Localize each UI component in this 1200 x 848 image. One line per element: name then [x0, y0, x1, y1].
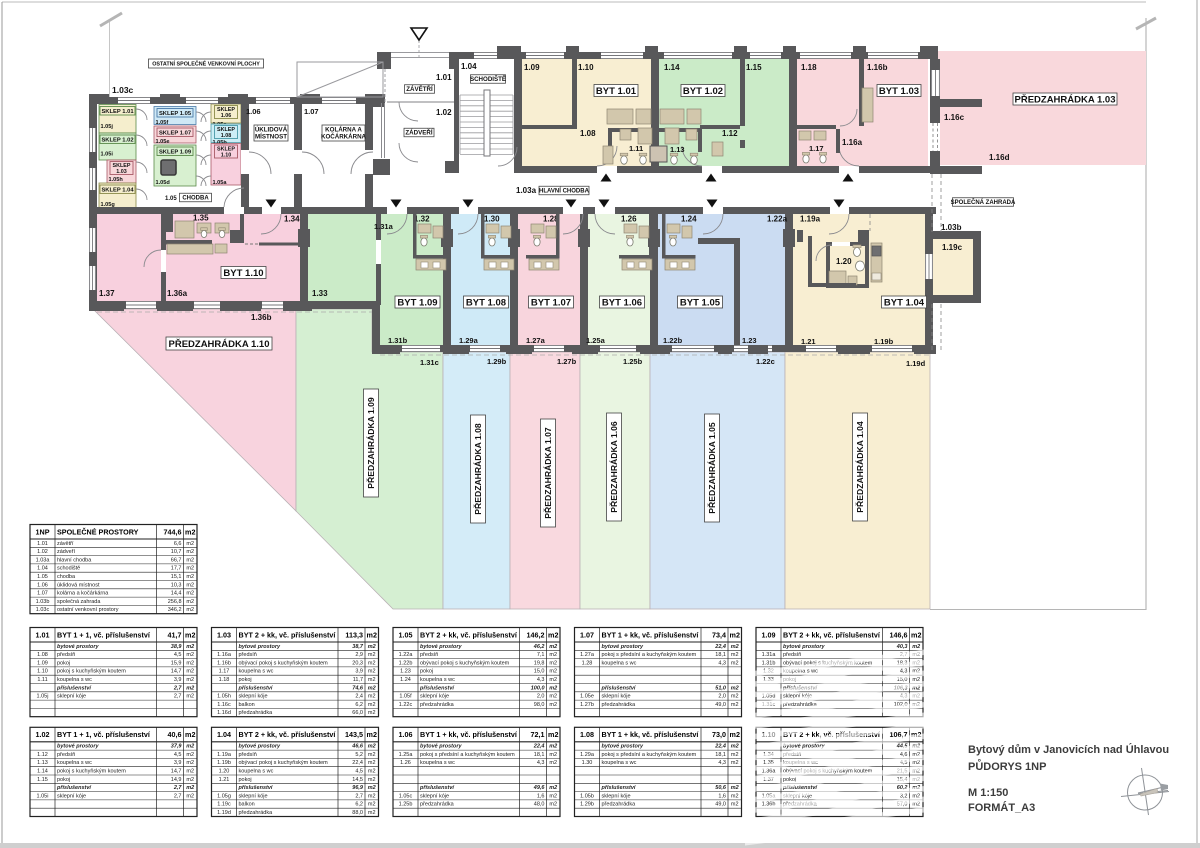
svg-text:1.19c: 1.19c	[942, 243, 963, 252]
svg-text:1.21: 1.21	[801, 337, 816, 346]
svg-text:1.19a: 1.19a	[217, 752, 232, 758]
svg-text:m2: m2	[731, 660, 739, 666]
svg-text:1.08: 1.08	[37, 652, 48, 658]
svg-text:1.19a: 1.19a	[800, 215, 821, 224]
svg-text:1.15: 1.15	[746, 63, 762, 72]
svg-text:koupelna s wc: koupelna s wc	[420, 677, 455, 683]
svg-text:společná zahrada: společná zahrada	[57, 599, 101, 605]
svg-text:ZÁDVEŘÍ: ZÁDVEŘÍ	[405, 129, 432, 137]
svg-text:sklepní kóje: sklepní kóje	[602, 793, 631, 799]
svg-text:1.16c: 1.16c	[944, 113, 965, 122]
svg-text:4,5: 4,5	[174, 652, 182, 658]
svg-text:m2: m2	[549, 669, 557, 675]
svg-text:m2: m2	[731, 793, 739, 799]
svg-text:m2: m2	[549, 785, 557, 791]
svg-text:17,7: 17,7	[171, 566, 182, 572]
svg-text:1.16b: 1.16b	[217, 660, 231, 666]
svg-text:balkon: balkon	[239, 702, 255, 708]
svg-text:m2: m2	[911, 630, 921, 639]
svg-text:koupelna s wc: koupelna s wc	[420, 760, 455, 766]
svg-text:1.04: 1.04	[461, 62, 477, 71]
svg-text:1.31a: 1.31a	[762, 652, 777, 658]
svg-text:3,9: 3,9	[174, 760, 182, 766]
svg-text:m2: m2	[731, 694, 739, 700]
svg-text:m2: m2	[368, 669, 376, 675]
svg-text:bytové prostory: bytové prostory	[783, 644, 826, 650]
svg-text:HLAVNÍ CHODBA: HLAVNÍ CHODBA	[539, 187, 590, 195]
svg-text:1.23: 1.23	[400, 669, 411, 675]
svg-text:předzahrádka: předzahrádka	[602, 802, 637, 808]
svg-text:1.19d: 1.19d	[906, 359, 926, 368]
svg-text:BYT 1 + kk, vč. příslušenství: BYT 1 + kk, vč. příslušenství	[602, 730, 700, 739]
svg-text:bytové prostory: bytové prostory	[602, 744, 645, 750]
svg-text:1.05e: 1.05e	[580, 694, 594, 700]
svg-text:1.22c: 1.22c	[399, 702, 413, 708]
svg-text:m2: m2	[731, 785, 739, 791]
svg-text:BYT 1.07: BYT 1.07	[531, 297, 571, 308]
svg-text:m2: m2	[730, 730, 740, 739]
svg-text:1.10: 1.10	[37, 669, 48, 675]
svg-text:BYT 1.04: BYT 1.04	[884, 297, 925, 308]
svg-text:1.03c: 1.03c	[36, 607, 50, 613]
svg-text:m2: m2	[186, 549, 194, 555]
svg-text:1.22b: 1.22b	[663, 336, 683, 345]
svg-text:1.19b: 1.19b	[217, 760, 231, 766]
svg-text:pokoj: pokoj	[239, 677, 252, 683]
svg-text:1.01: 1.01	[37, 541, 48, 547]
svg-text:1.02: 1.02	[436, 108, 452, 117]
svg-text:1.16a: 1.16a	[217, 652, 232, 658]
svg-text:1.03b: 1.03b	[36, 599, 50, 605]
svg-text:pokoj s předsíní a kuchyňským: pokoj s předsíní a kuchyňským koutem	[602, 652, 697, 658]
svg-text:m2: m2	[731, 744, 739, 750]
svg-text:m2: m2	[186, 582, 194, 588]
svg-text:BYT 2 + kk, vč. příslušenství: BYT 2 + kk, vč. příslušenství	[420, 630, 518, 639]
svg-text:předzahrádka: předzahrádka	[602, 702, 637, 708]
svg-text:m2: m2	[186, 760, 194, 766]
svg-text:m2: m2	[368, 685, 376, 691]
svg-text:1.19b: 1.19b	[874, 337, 894, 346]
svg-text:6,6: 6,6	[174, 541, 182, 547]
svg-text:49,0: 49,0	[715, 702, 726, 708]
svg-text:PŘEDZAHRÁDKA 1.07: PŘEDZAHRÁDKA 1.07	[542, 427, 553, 519]
svg-text:1.25b: 1.25b	[399, 802, 413, 808]
svg-text:m2: m2	[368, 793, 376, 799]
svg-text:ostatní venkovní prostory: ostatní venkovní prostory	[57, 607, 119, 613]
svg-text:m2: m2	[731, 802, 739, 808]
svg-text:11,7: 11,7	[353, 677, 363, 683]
svg-text:chodba: chodba	[57, 574, 76, 580]
svg-text:1.05j: 1.05j	[37, 694, 49, 700]
svg-text:m2: m2	[549, 685, 557, 691]
svg-text:744,6: 744,6	[164, 527, 182, 536]
svg-text:BYT 1.09: BYT 1.09	[397, 297, 437, 308]
svg-text:BYT 1.08: BYT 1.08	[466, 297, 506, 308]
svg-text:1.03c: 1.03c	[112, 85, 134, 95]
svg-text:346,2: 346,2	[168, 607, 182, 613]
svg-text:PŘEDZAHRÁDKA 1.08: PŘEDZAHRÁDKA 1.08	[472, 423, 483, 515]
svg-text:m2: m2	[368, 744, 376, 750]
svg-text:6,2: 6,2	[355, 702, 363, 708]
svg-text:14,4: 14,4	[171, 591, 182, 597]
svg-text:1.16c: 1.16c	[217, 702, 231, 708]
svg-text:15,9: 15,9	[171, 660, 182, 666]
svg-text:1.27a: 1.27a	[580, 652, 595, 658]
svg-text:m2: m2	[186, 669, 194, 675]
svg-text:m2: m2	[186, 694, 194, 700]
svg-text:BYT 2 + kk, vč. příslušenství: BYT 2 + kk, vč. příslušenství	[783, 630, 881, 639]
svg-text:m2: m2	[367, 630, 377, 639]
svg-text:příslušenství: příslušenství	[56, 785, 92, 791]
svg-text:4,3: 4,3	[537, 760, 545, 766]
svg-text:PŮDORYS 1NP: PŮDORYS 1NP	[968, 759, 1046, 773]
svg-text:bytové prostory: bytové prostory	[57, 644, 100, 650]
svg-text:SKLEP: SKLEP	[113, 163, 131, 169]
svg-text:18,1: 18,1	[715, 652, 726, 658]
svg-text:1.20: 1.20	[836, 257, 852, 266]
svg-text:m2: m2	[549, 793, 557, 799]
svg-text:pokoj s kuchyňským koutem: pokoj s kuchyňským koutem	[57, 669, 126, 675]
svg-text:1.31a: 1.31a	[374, 222, 394, 231]
svg-text:obývací pokoj s kuchyňským kou: obývací pokoj s kuchyňským koutem	[420, 660, 510, 666]
svg-text:m2: m2	[367, 730, 377, 739]
svg-text:PŘEDZAHRÁDKA 1.06: PŘEDZAHRÁDKA 1.06	[608, 421, 619, 513]
svg-text:m2: m2	[549, 652, 557, 658]
svg-text:předsíň: předsíň	[57, 652, 75, 658]
svg-text:7,1: 7,1	[537, 652, 545, 658]
svg-text:1.23: 1.23	[742, 336, 757, 345]
svg-text:BYT 2 + kk, vč. příslušenství: BYT 2 + kk, vč. příslušenství	[239, 730, 337, 739]
svg-text:koupelna s wc: koupelna s wc	[602, 760, 637, 766]
svg-text:pokoj s předsíní a kuchyňským: pokoj s předsíní a kuchyňským koutem	[602, 752, 697, 758]
svg-text:m2: m2	[185, 630, 195, 639]
svg-text:m2: m2	[186, 685, 194, 691]
svg-text:předsíň: předsíň	[239, 652, 257, 658]
svg-text:m2: m2	[549, 752, 557, 758]
svg-text:1.24: 1.24	[400, 677, 411, 683]
svg-text:BYT 1.01: BYT 1.01	[596, 86, 637, 97]
svg-text:BYT 1.10: BYT 1.10	[223, 268, 263, 279]
svg-text:BYT 1 + kk, vč. příslušenství: BYT 1 + kk, vč. příslušenství	[420, 730, 518, 739]
svg-text:1.22b: 1.22b	[399, 660, 413, 666]
svg-text:pokoj: pokoj	[239, 777, 252, 783]
svg-text:m2: m2	[185, 730, 195, 739]
svg-text:BYT 1.06: BYT 1.06	[602, 297, 642, 308]
svg-text:příslušenství: příslušenství	[238, 785, 274, 791]
svg-text:m2: m2	[549, 760, 557, 766]
svg-text:1.14: 1.14	[664, 63, 680, 72]
svg-text:1.31c: 1.31c	[420, 358, 439, 367]
svg-text:48,0: 48,0	[534, 802, 545, 808]
svg-text:KOLÁRNA A: KOLÁRNA A	[325, 127, 362, 134]
svg-text:SKLEP 1.02: SKLEP 1.02	[101, 137, 133, 143]
svg-text:M 1:150: M 1:150	[968, 787, 1008, 799]
svg-text:m2: m2	[548, 630, 558, 639]
svg-text:1.05f: 1.05f	[156, 120, 169, 126]
svg-text:1.03: 1.03	[116, 169, 127, 175]
svg-text:1.05f: 1.05f	[399, 694, 412, 700]
svg-text:2,0: 2,0	[537, 694, 545, 700]
svg-text:m2: m2	[368, 777, 376, 783]
svg-text:1.05h: 1.05h	[217, 694, 231, 700]
svg-text:m2: m2	[186, 785, 194, 791]
svg-text:m2: m2	[186, 677, 194, 683]
svg-text:m2: m2	[368, 702, 376, 708]
svg-text:1.10: 1.10	[221, 153, 232, 159]
svg-text:schodiště: schodiště	[57, 566, 80, 572]
svg-text:1.27a: 1.27a	[526, 336, 546, 345]
svg-text:MÍSTNOST: MÍSTNOST	[255, 133, 287, 141]
svg-text:6,2: 6,2	[355, 802, 363, 808]
svg-text:BYT 2 + kk, vč. příslušenství: BYT 2 + kk, vč. příslušenství	[239, 630, 337, 639]
svg-text:2,7: 2,7	[173, 685, 183, 691]
svg-text:příslušenství: příslušenství	[419, 785, 455, 791]
svg-text:m2: m2	[368, 785, 376, 791]
svg-text:obývací pokoj s kuchyňským kou: obývací pokoj s kuchyňským koutem	[239, 760, 329, 766]
svg-text:1.29b: 1.29b	[580, 802, 594, 808]
svg-text:koupelna s wc: koupelna s wc	[57, 760, 92, 766]
svg-text:1.04: 1.04	[217, 730, 231, 739]
svg-text:m2: m2	[368, 810, 376, 816]
svg-text:předzahrádka: předzahrádka	[239, 710, 274, 716]
svg-text:SKLEP 1.09: SKLEP 1.09	[159, 149, 192, 155]
svg-text:1.07: 1.07	[304, 107, 319, 116]
svg-text:2,0: 2,0	[718, 694, 726, 700]
svg-text:4,5: 4,5	[355, 769, 363, 775]
svg-text:BYT 1.03: BYT 1.03	[879, 86, 919, 97]
svg-text:1.16d: 1.16d	[989, 153, 1010, 162]
svg-text:m2: m2	[368, 769, 376, 775]
svg-text:4,5: 4,5	[174, 752, 182, 758]
svg-text:m2: m2	[186, 599, 194, 605]
svg-text:obývací pokoj s kuchyňským kou: obývací pokoj s kuchyňským koutem	[239, 660, 329, 666]
svg-text:m2: m2	[549, 802, 557, 808]
svg-text:1.36b: 1.36b	[251, 313, 272, 322]
svg-text:1,6: 1,6	[537, 793, 545, 799]
svg-text:PŘEDZAHRÁDKA 1.05: PŘEDZAHRÁDKA 1.05	[706, 422, 717, 514]
svg-text:předzahrádka: předzahrádka	[420, 702, 455, 708]
svg-text:příslušenství: příslušenství	[56, 685, 92, 691]
svg-text:1.27b: 1.27b	[557, 357, 577, 366]
svg-text:1.25b: 1.25b	[623, 357, 643, 366]
svg-text:bytové prostory: bytové prostory	[239, 644, 282, 650]
svg-text:PŘEDZAHRÁDKA 1.03: PŘEDZAHRÁDKA 1.03	[1015, 93, 1116, 105]
svg-text:46,2: 46,2	[533, 644, 545, 650]
svg-text:1.03a: 1.03a	[36, 557, 51, 563]
svg-text:sklepní kóje: sklepní kóje	[57, 793, 86, 799]
svg-text:zádveří: zádveří	[57, 549, 76, 555]
svg-text:100,0: 100,0	[531, 685, 545, 691]
svg-text:m2: m2	[185, 527, 195, 536]
svg-text:98,0: 98,0	[534, 702, 545, 708]
svg-text:10,3: 10,3	[171, 582, 182, 588]
svg-text:2,7: 2,7	[174, 694, 182, 700]
svg-text:2,9: 2,9	[355, 652, 363, 658]
svg-text:1.05c: 1.05c	[399, 793, 413, 799]
svg-text:1.20: 1.20	[219, 769, 230, 775]
svg-text:1.05: 1.05	[165, 196, 177, 202]
svg-text:pokoj s předsíní a kuchyňským: pokoj s předsíní a kuchyňským koutem	[420, 752, 515, 758]
svg-text:m2: m2	[186, 777, 194, 783]
svg-text:SKLEP: SKLEP	[217, 107, 235, 113]
svg-text:1.12: 1.12	[37, 752, 48, 758]
svg-text:1.03a: 1.03a	[516, 186, 537, 195]
svg-text:40,6: 40,6	[168, 730, 182, 739]
svg-text:1.06: 1.06	[37, 582, 48, 588]
svg-text:m2: m2	[368, 760, 376, 766]
svg-text:1.05d: 1.05d	[156, 180, 171, 186]
svg-text:BYT 1 + 1, vč. příslušenství: BYT 1 + 1, vč. příslušenství	[57, 730, 151, 739]
svg-text:m2: m2	[368, 660, 376, 666]
svg-text:113,3: 113,3	[345, 630, 363, 639]
svg-text:4,3: 4,3	[718, 760, 726, 766]
svg-text:1.07: 1.07	[580, 630, 594, 639]
svg-text:pokoj: pokoj	[57, 777, 70, 783]
svg-text:15,1: 15,1	[171, 574, 182, 580]
svg-text:22,4: 22,4	[533, 744, 545, 750]
svg-text:KOČÁRKÁRNA: KOČÁRKÁRNA	[321, 134, 367, 141]
svg-text:úklidová místnost: úklidová místnost	[57, 582, 100, 588]
svg-text:1.31b: 1.31b	[762, 660, 776, 666]
svg-text:146,6: 146,6	[890, 630, 908, 639]
svg-text:koupelna s wc: koupelna s wc	[57, 677, 92, 683]
svg-text:1.24: 1.24	[681, 215, 697, 224]
svg-text:m2: m2	[186, 574, 194, 580]
svg-text:SKLEP 1.01: SKLEP 1.01	[101, 109, 134, 115]
svg-text:38,7: 38,7	[352, 644, 364, 650]
svg-text:1NP: 1NP	[36, 527, 50, 536]
svg-text:BYT 1.05: BYT 1.05	[680, 297, 721, 308]
svg-text:22,4: 22,4	[352, 760, 363, 766]
svg-text:PŘEDZAHRÁDKA 1.09: PŘEDZAHRÁDKA 1.09	[365, 397, 376, 489]
svg-text:1.06: 1.06	[246, 107, 261, 116]
svg-text:1.16b: 1.16b	[867, 63, 888, 72]
svg-text:2,7: 2,7	[355, 793, 363, 799]
svg-text:příslušenství: příslušenství	[601, 785, 637, 791]
svg-text:14,5: 14,5	[352, 777, 363, 783]
svg-text:1.30: 1.30	[484, 215, 500, 224]
svg-text:příslušenství: příslušenství	[601, 685, 637, 691]
svg-text:1.30: 1.30	[582, 760, 593, 766]
svg-text:1.08: 1.08	[221, 133, 232, 139]
svg-text:88,0: 88,0	[352, 810, 363, 816]
svg-text:BYT 1 + kk, vč. příslušenství: BYT 1 + kk, vč. příslušenství	[602, 630, 700, 639]
svg-text:m2: m2	[186, 752, 194, 758]
svg-text:1.18: 1.18	[219, 677, 230, 683]
svg-text:49,0: 49,0	[715, 802, 726, 808]
svg-text:4,3: 4,3	[718, 660, 726, 666]
svg-text:příslušenství: příslušenství	[419, 685, 455, 691]
svg-text:m2: m2	[731, 752, 739, 758]
svg-text:m2: m2	[731, 652, 739, 658]
svg-text:1.02: 1.02	[37, 549, 48, 555]
svg-text:1.12: 1.12	[722, 129, 738, 138]
svg-text:1.09: 1.09	[762, 630, 776, 639]
svg-text:závětří: závětří	[57, 541, 74, 547]
svg-text:74,6: 74,6	[352, 685, 364, 691]
svg-text:m2: m2	[186, 607, 194, 613]
svg-text:1.22c: 1.22c	[756, 357, 775, 366]
svg-text:1.05: 1.05	[399, 630, 413, 639]
svg-text:2,7: 2,7	[173, 785, 183, 791]
svg-text:1.05h: 1.05h	[109, 177, 124, 183]
svg-text:SKLEP 1.04: SKLEP 1.04	[101, 187, 134, 193]
svg-text:1.10: 1.10	[578, 63, 594, 72]
svg-text:ZÁVĚTŘÍ: ZÁVĚTŘÍ	[406, 85, 433, 93]
svg-text:2,7: 2,7	[174, 793, 182, 799]
svg-text:m2: m2	[731, 760, 739, 766]
svg-text:PŘEDZAHRÁDKA 1.04: PŘEDZAHRÁDKA 1.04	[854, 421, 865, 513]
svg-text:256,8: 256,8	[168, 599, 182, 605]
svg-text:10,7: 10,7	[171, 549, 182, 555]
svg-text:1.25a: 1.25a	[586, 336, 606, 345]
svg-text:předsíň: předsíň	[57, 752, 75, 758]
svg-text:1.05i: 1.05i	[37, 793, 49, 799]
svg-text:1.25a: 1.25a	[399, 752, 414, 758]
svg-text:sklepní kóje: sklepní kóje	[239, 793, 268, 799]
svg-text:20,3: 20,3	[352, 660, 363, 666]
svg-text:22,4: 22,4	[714, 644, 726, 650]
svg-text:m2: m2	[549, 644, 557, 650]
svg-text:předsíň: předsíň	[783, 652, 801, 658]
svg-text:1.13: 1.13	[37, 760, 48, 766]
svg-text:m2: m2	[368, 677, 376, 683]
svg-text:1.05b: 1.05b	[580, 793, 594, 799]
svg-text:1.19d: 1.19d	[217, 810, 231, 816]
svg-text:51,0: 51,0	[715, 685, 726, 691]
svg-text:1.16a: 1.16a	[842, 138, 863, 147]
svg-text:1.09: 1.09	[37, 660, 48, 666]
svg-text:143,5: 143,5	[345, 730, 363, 739]
svg-text:1.26: 1.26	[400, 760, 411, 766]
svg-text:1.02: 1.02	[36, 730, 50, 739]
svg-text:m2: m2	[549, 677, 557, 683]
svg-text:49,6: 49,6	[533, 785, 546, 791]
svg-text:22,4: 22,4	[714, 744, 726, 750]
svg-text:1.04: 1.04	[37, 566, 48, 572]
svg-text:1.22a: 1.22a	[767, 215, 788, 224]
svg-text:38,9: 38,9	[171, 644, 183, 650]
svg-text:1.29b: 1.29b	[487, 357, 507, 366]
svg-text:BYT 1.02: BYT 1.02	[683, 86, 723, 97]
svg-text:1.21: 1.21	[219, 777, 230, 783]
svg-text:SPOLEČNÁ ZAHRADA: SPOLEČNÁ ZAHRADA	[951, 199, 1016, 206]
svg-text:4,3: 4,3	[537, 677, 545, 683]
svg-text:1.27b: 1.27b	[580, 702, 594, 708]
svg-text:koupelna s wc: koupelna s wc	[239, 769, 274, 775]
svg-text:1.14: 1.14	[37, 769, 48, 775]
svg-text:CHODBA: CHODBA	[182, 196, 209, 202]
svg-text:SKLEP: SKLEP	[217, 147, 235, 153]
svg-text:1.03: 1.03	[217, 630, 231, 639]
svg-text:18,1: 18,1	[715, 752, 726, 758]
svg-text:50,6: 50,6	[715, 785, 727, 791]
svg-text:sklepní kóje: sklepní kóje	[239, 694, 268, 700]
svg-text:1.22a: 1.22a	[399, 652, 414, 658]
svg-text:5,2: 5,2	[355, 752, 363, 758]
svg-text:14,9: 14,9	[171, 777, 182, 783]
svg-text:SKLEP 1.05: SKLEP 1.05	[159, 111, 192, 117]
svg-text:m2: m2	[549, 744, 557, 750]
svg-text:15,0: 15,0	[534, 669, 545, 675]
svg-text:pokoj: pokoj	[420, 669, 433, 675]
svg-text:pokoj s kuchyňským koutem: pokoj s kuchyňským koutem	[57, 769, 126, 775]
svg-text:m2: m2	[186, 660, 194, 666]
svg-text:předsíň: předsíň	[420, 652, 438, 658]
svg-text:1.16d: 1.16d	[217, 710, 231, 716]
svg-text:1.29a: 1.29a	[459, 336, 479, 345]
svg-text:1.37: 1.37	[99, 289, 115, 298]
